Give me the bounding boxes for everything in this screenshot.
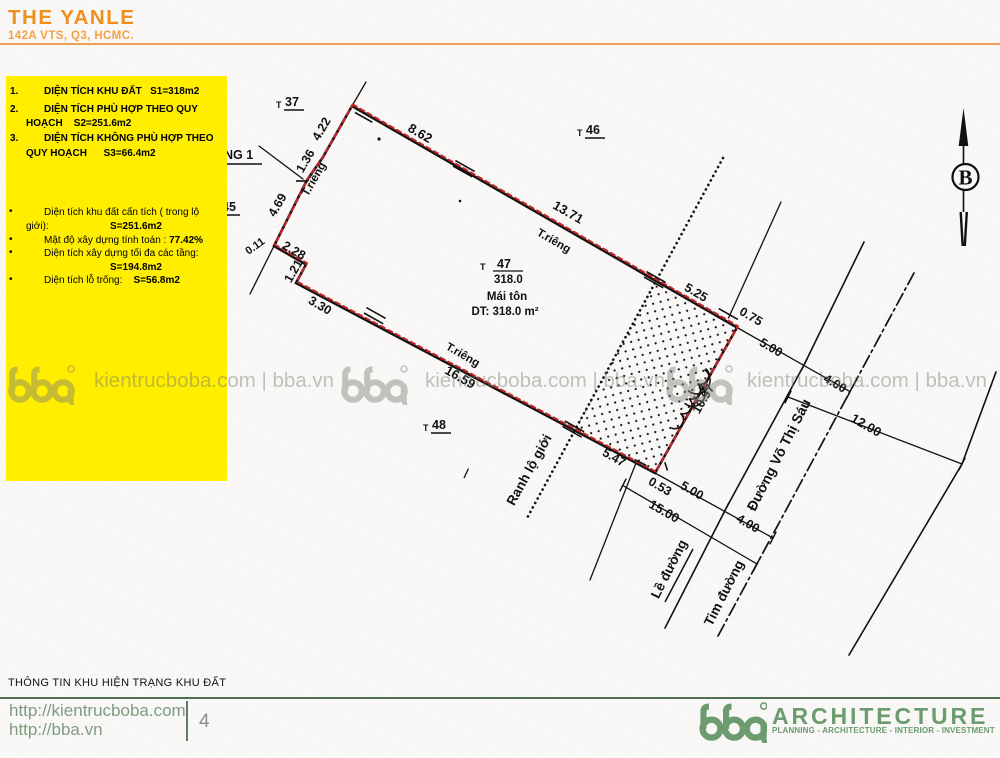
svg-text:NG 1: NG 1 [224,148,253,162]
svg-text:0.75: 0.75 [737,304,765,328]
svg-text:5.00: 5.00 [757,335,785,359]
svg-text:48: 48 [432,418,446,432]
svg-text:318.0: 318.0 [494,274,523,286]
svg-text:15.00: 15.00 [646,496,682,525]
svg-text:T: T [577,128,583,138]
svg-text:Ranh lộ giới: Ranh lộ giới [503,432,554,508]
svg-text:8.62: 8.62 [406,120,435,146]
svg-text:DT: 318.0 m²: DT: 318.0 m² [471,306,538,318]
svg-text:0.53: 0.53 [646,474,674,498]
svg-text:Tim đường: Tim đường [701,558,747,629]
svg-text:37: 37 [285,95,299,109]
svg-text:T: T [423,423,429,433]
svg-text:46: 46 [586,123,600,137]
svg-text:4.69: 4.69 [265,191,289,219]
svg-text:T: T [480,262,486,272]
svg-text:12.00: 12.00 [848,410,884,439]
svg-text:0.11: 0.11 [243,236,267,258]
svg-text:Mái tôn: Mái tôn [487,291,527,303]
svg-text:T: T [276,100,282,110]
svg-text:T.riêng: T.riêng [534,227,572,256]
svg-text:4.22: 4.22 [309,115,333,143]
svg-text:Đường Võ Thị Sáu: Đường Võ Thị Sáu [743,396,813,513]
svg-text:B: B [958,166,972,190]
svg-text:4.00: 4.00 [734,511,762,535]
svg-text:47: 47 [497,257,511,271]
svg-text:3.30: 3.30 [306,293,334,317]
